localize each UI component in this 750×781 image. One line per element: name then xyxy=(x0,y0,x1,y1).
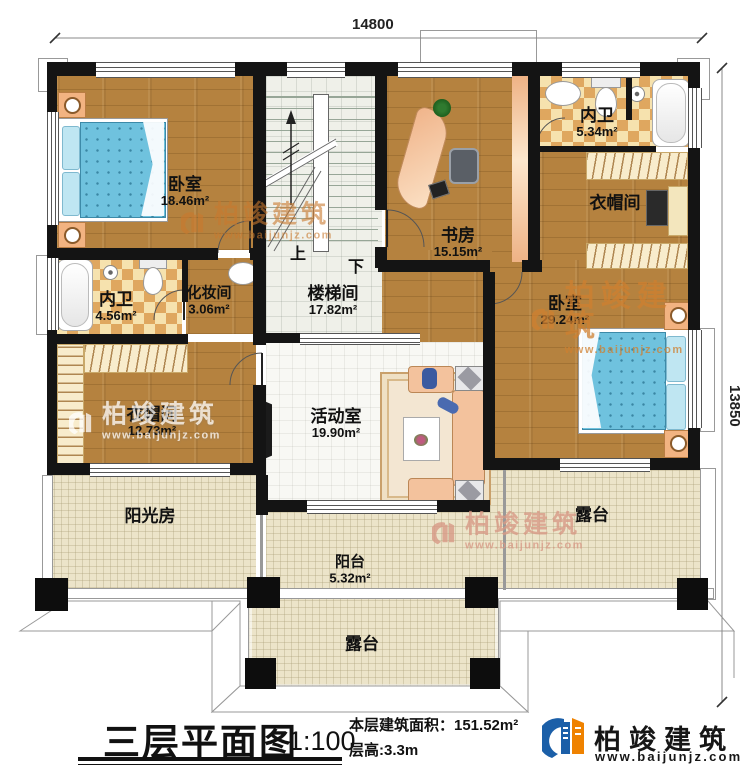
wall-segment xyxy=(47,62,57,112)
wall-segment xyxy=(250,248,266,260)
room-label-bedroom-right: 卧室 29.24m² xyxy=(541,294,589,328)
wall-segment xyxy=(253,62,266,250)
lamp-icon xyxy=(670,435,687,452)
room-terrace-right-floor xyxy=(490,470,700,596)
wall-segment xyxy=(345,62,398,76)
nightstand xyxy=(58,92,86,118)
wall-segment xyxy=(256,500,307,512)
room-label-closet-right: 衣帽间 xyxy=(590,193,641,212)
window xyxy=(688,88,702,148)
room-name: 阳光房 xyxy=(125,506,176,525)
pillow xyxy=(62,172,80,216)
room-area: 18.46m² xyxy=(161,194,209,209)
pillow xyxy=(666,336,686,382)
balcony-railing xyxy=(42,588,714,599)
floor-plan: 卧室 18.46m² 书房 15.15m² 内卫 5.34m² 衣帽间 卧室 2… xyxy=(0,0,750,781)
room-area: 17.82m² xyxy=(308,303,359,318)
stair-stringer xyxy=(313,94,329,252)
window xyxy=(287,62,345,78)
side-table xyxy=(455,366,484,391)
dresser-counter xyxy=(668,186,688,236)
room-label-bedroom-left: 卧室 18.46m² xyxy=(161,175,209,209)
column xyxy=(245,658,276,689)
toilet xyxy=(143,267,163,295)
room-label-bath-top: 内卫 5.34m² xyxy=(576,106,617,140)
wall-segment xyxy=(47,248,218,260)
window xyxy=(688,330,702,428)
room-name: 露台 xyxy=(575,505,609,524)
flower-icon xyxy=(414,434,428,446)
room-name: 阳台 xyxy=(329,554,370,571)
room-area: 12.73m² xyxy=(127,424,178,439)
title-underline xyxy=(78,757,342,761)
room-name: 化妆间 xyxy=(186,285,231,302)
wall-segment xyxy=(266,333,300,343)
shower-head-icon xyxy=(103,265,118,280)
lamp-icon xyxy=(670,307,687,324)
wall-segment xyxy=(230,463,266,475)
room-name: 卧室 xyxy=(161,175,209,194)
plant-icon xyxy=(433,99,451,117)
room-area: 3.06m² xyxy=(186,302,231,317)
coffee-table xyxy=(403,417,440,461)
room-sunroom-floor xyxy=(47,475,256,596)
wall-segment xyxy=(47,330,57,475)
bathtub xyxy=(652,79,690,147)
plan-scale: 1:100 xyxy=(288,726,356,757)
wardrobe-rack xyxy=(84,344,188,373)
stairs-down-label: 下 xyxy=(348,253,364,277)
nightstand xyxy=(58,222,86,248)
bathtub xyxy=(57,259,93,331)
wardrobe-rack xyxy=(586,152,688,180)
room-name: 活动室 xyxy=(311,407,362,426)
wall-segment xyxy=(626,76,632,120)
room-label-balcony: 阳台 5.32m² xyxy=(329,554,370,585)
room-area: 5.34m² xyxy=(576,125,617,140)
dresser xyxy=(646,190,668,226)
wall-segment xyxy=(253,385,266,465)
window xyxy=(90,463,230,477)
room-name: 书房 xyxy=(434,226,482,245)
room-label-study: 书房 15.15m² xyxy=(434,226,482,260)
wall-segment xyxy=(528,62,540,262)
column xyxy=(35,578,68,611)
person-figure xyxy=(422,368,437,389)
room-area: 19.90m² xyxy=(311,426,362,441)
room-area: 29.24m² xyxy=(541,313,589,328)
wall-segment xyxy=(540,146,656,152)
wardrobe-rack xyxy=(586,243,688,269)
brand-website: www.baijunjz.com xyxy=(595,749,742,764)
column xyxy=(470,658,500,689)
wall-segment xyxy=(375,62,387,210)
stairs-up-label: 上 xyxy=(290,240,306,264)
column xyxy=(677,578,708,610)
room-label-closet-left: 衣帽间 12.73m² xyxy=(127,405,178,439)
room-label-stairwell: 楼梯间 17.82m² xyxy=(308,284,359,318)
floor-height-note: 层高:3.3m xyxy=(349,739,418,760)
room-area: 5.32m² xyxy=(329,571,370,586)
wall-segment xyxy=(483,272,495,458)
lamp-icon xyxy=(64,97,81,114)
window xyxy=(47,112,59,225)
wall-segment xyxy=(47,334,188,344)
interior-window xyxy=(300,333,420,345)
bathtub-inner xyxy=(656,83,686,143)
room-label-sunroom: 阳光房 xyxy=(125,506,176,525)
wall-segment xyxy=(688,62,700,88)
room-area: 4.56m² xyxy=(95,309,136,324)
window xyxy=(562,62,640,78)
room-label-activity: 活动室 19.90m² xyxy=(311,407,362,441)
window xyxy=(47,258,59,330)
side-table-top xyxy=(457,366,481,390)
room-name: 衣帽间 xyxy=(590,193,641,212)
room-name: 内卫 xyxy=(576,106,617,125)
window xyxy=(307,500,437,514)
balcony-terrace-divider xyxy=(503,470,506,590)
room-name: 卧室 xyxy=(541,294,589,313)
wall-segment xyxy=(437,500,490,512)
window xyxy=(96,62,235,78)
brand-logo-icon xyxy=(542,710,588,764)
sunroom-glass-wall xyxy=(42,475,53,594)
room-label-bath-left: 内卫 4.56m² xyxy=(95,290,136,324)
column xyxy=(247,577,280,608)
sink xyxy=(545,81,581,106)
room-name: 内卫 xyxy=(95,290,136,309)
room-name: 衣帽间 xyxy=(127,405,178,424)
column xyxy=(465,577,498,608)
room-name: 楼梯间 xyxy=(308,284,359,303)
room-label-terrace-bottom: 露台 xyxy=(345,634,379,653)
wall-segment xyxy=(378,260,490,272)
room-area: 15.15m² xyxy=(434,245,482,260)
bathtub-inner xyxy=(61,263,89,327)
wall-segment xyxy=(47,463,90,475)
pillow xyxy=(62,126,80,170)
wall-segment xyxy=(688,148,700,330)
room-label-terrace-right: 露台 xyxy=(575,505,609,524)
window xyxy=(560,458,650,472)
floor-area-note: 本层建筑面积：151.52m² xyxy=(349,714,518,735)
title-underline-thin xyxy=(78,764,342,765)
room-name: 露台 xyxy=(345,634,379,653)
lamp-icon xyxy=(64,227,81,244)
pillow xyxy=(666,384,686,430)
dimension-right: 13850 xyxy=(726,385,743,427)
window xyxy=(398,62,512,78)
wall-segment xyxy=(253,260,266,345)
window-sill-bedroom-right xyxy=(700,328,715,432)
wardrobe-rack xyxy=(57,344,84,466)
wall-segment xyxy=(483,458,560,470)
room-label-makeup: 化妆间 3.06m² xyxy=(186,285,231,316)
wall-segment xyxy=(650,458,700,470)
desk-chair xyxy=(449,148,479,184)
dimension-top: 14800 xyxy=(352,16,394,33)
